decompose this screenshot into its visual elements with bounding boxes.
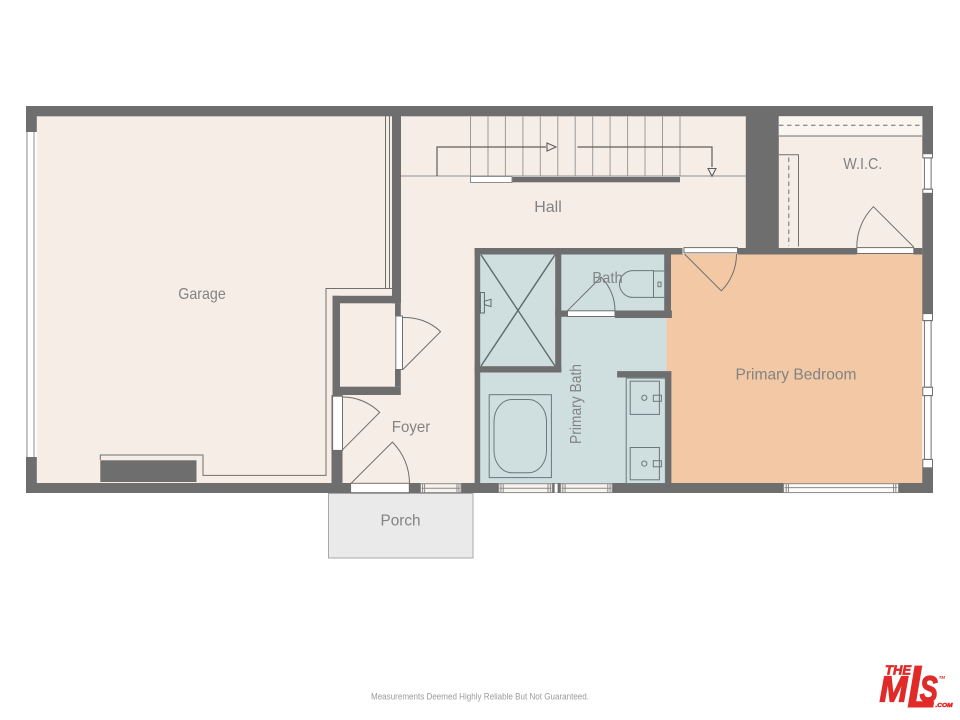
svg-text:W.I.C.: W.I.C. [843,156,882,173]
svg-text:Hall: Hall [534,199,562,216]
svg-text:TM: TM [939,675,946,680]
svg-text:Primary Bath: Primary Bath [568,364,585,444]
svg-text:Bath: Bath [592,270,623,287]
svg-text:Foyer: Foyer [392,419,431,436]
svg-text:M: M [880,668,909,709]
svg-text:Primary Bedroom: Primary Bedroom [736,367,857,384]
svg-text:.COM: .COM [936,703,953,709]
svg-text:Porch: Porch [381,513,421,530]
svg-text:Measurements Deemed Highly Rel: Measurements Deemed Highly Reliable But … [371,692,589,702]
svg-text:Garage: Garage [178,286,226,303]
